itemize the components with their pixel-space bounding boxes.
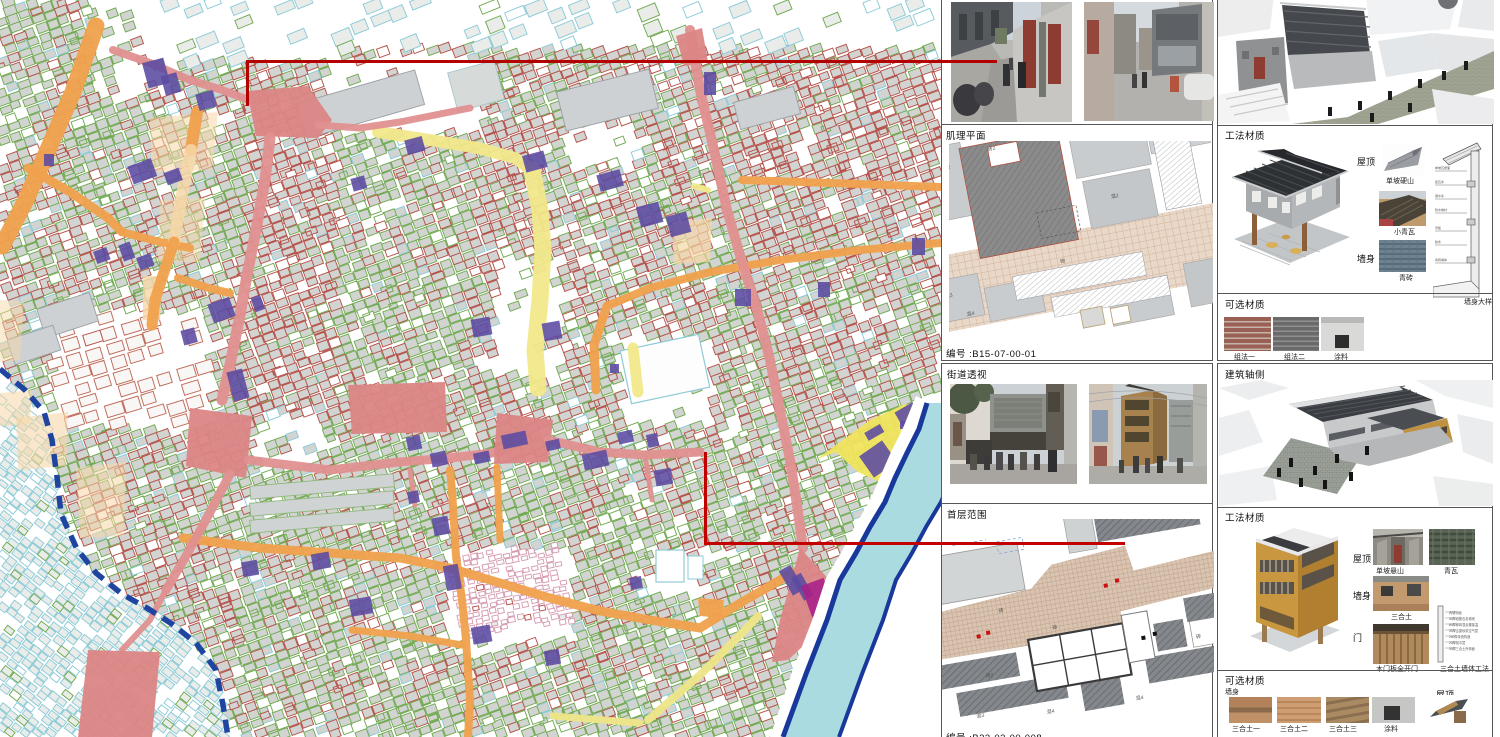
svg-text:单坡瓦屋面: 单坡瓦屋面 [1435, 165, 1450, 170]
svg-text:内墙饰面: 内墙饰面 [1449, 610, 1462, 615]
svg-text:30厚三合土外饰面: 30厚三合土外饰面 [1449, 646, 1475, 651]
svg-text:檩条: 檩条 [1435, 239, 1441, 244]
svg-text:30厚纸筋石灰墙垸: 30厚纸筋石灰墙垸 [1449, 616, 1476, 621]
svg-text:砖2: 砖2 [985, 671, 994, 679]
svg-text:防水卷材: 防水卷材 [1435, 207, 1447, 212]
svg-text:30厚企康砂浆空气层: 30厚企康砂浆空气层 [1449, 628, 1478, 633]
svg-text:青砖墙体: 青砖墙体 [1435, 257, 1447, 262]
svg-text:混3: 混3 [976, 712, 985, 720]
svg-text:混4: 混4 [1046, 707, 1055, 715]
svg-text:20厚找平层: 20厚找平层 [1449, 640, 1465, 645]
svg-text:80厚碎砖混合楼保温: 80厚碎砖混合楼保温 [1449, 622, 1479, 627]
svg-text:240厚传统构造: 240厚传统构造 [1449, 634, 1471, 639]
svg-text:顺水条: 顺水条 [1435, 193, 1444, 198]
svg-text:望板: 望板 [1435, 225, 1441, 230]
svg-text:混4: 混4 [1135, 694, 1144, 702]
svg-text:挂瓦条: 挂瓦条 [1435, 179, 1444, 184]
